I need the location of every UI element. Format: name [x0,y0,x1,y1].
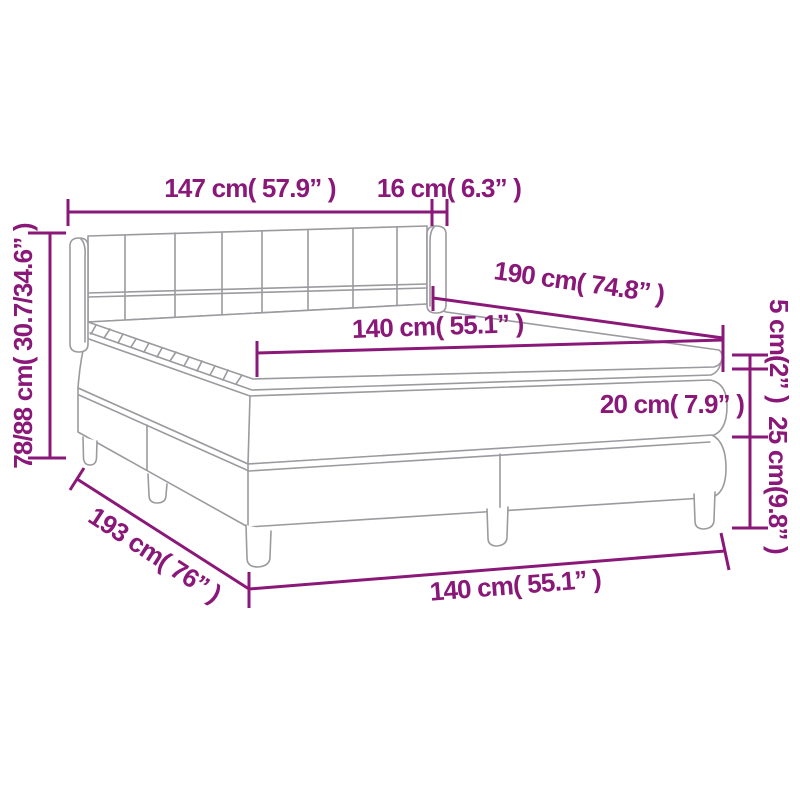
dim-bed-length-label: 193 cm( 76” ) [83,501,226,609]
dim-mattress-width-label: 140 cm( 55.1” ) [351,308,524,344]
dim-bed-width-label: 140 cm( 55.1” ) [429,563,603,606]
dim-heights-line [732,355,768,528]
bed-leg-back-left [83,437,97,465]
dim-headboard-height-label: 78/88 cm( 30.7/34.6” ) [8,223,38,469]
bed-leg-front-right [694,492,715,529]
dim-wing-depth-label: 16 cm( 6.3” ) [377,173,521,203]
dim-mattress-length-label: 190 cm( 74.8” ) [492,255,666,309]
dim-mattress-height-label: 20 cm( 7.9” ) [600,389,744,419]
dim-base-height-label: 25 cm(9.8” ) [763,416,793,554]
bed-dimension-diagram: 147 cm( 57.9” ) 16 cm( 6.3” ) 78/88 cm( … [0,0,800,800]
dim-headboard-width-line [68,199,447,226]
bed-leg-front-corner [246,525,271,567]
diagram-canvas: 147 cm( 57.9” ) 16 cm( 6.3” ) 78/88 cm( … [0,0,800,800]
dim-headboard-width-label: 147 cm( 57.9” ) [164,173,336,203]
bed-leg-front-middle [487,507,508,546]
dim-topper-height-label: 5 cm(2” ) [764,299,794,403]
